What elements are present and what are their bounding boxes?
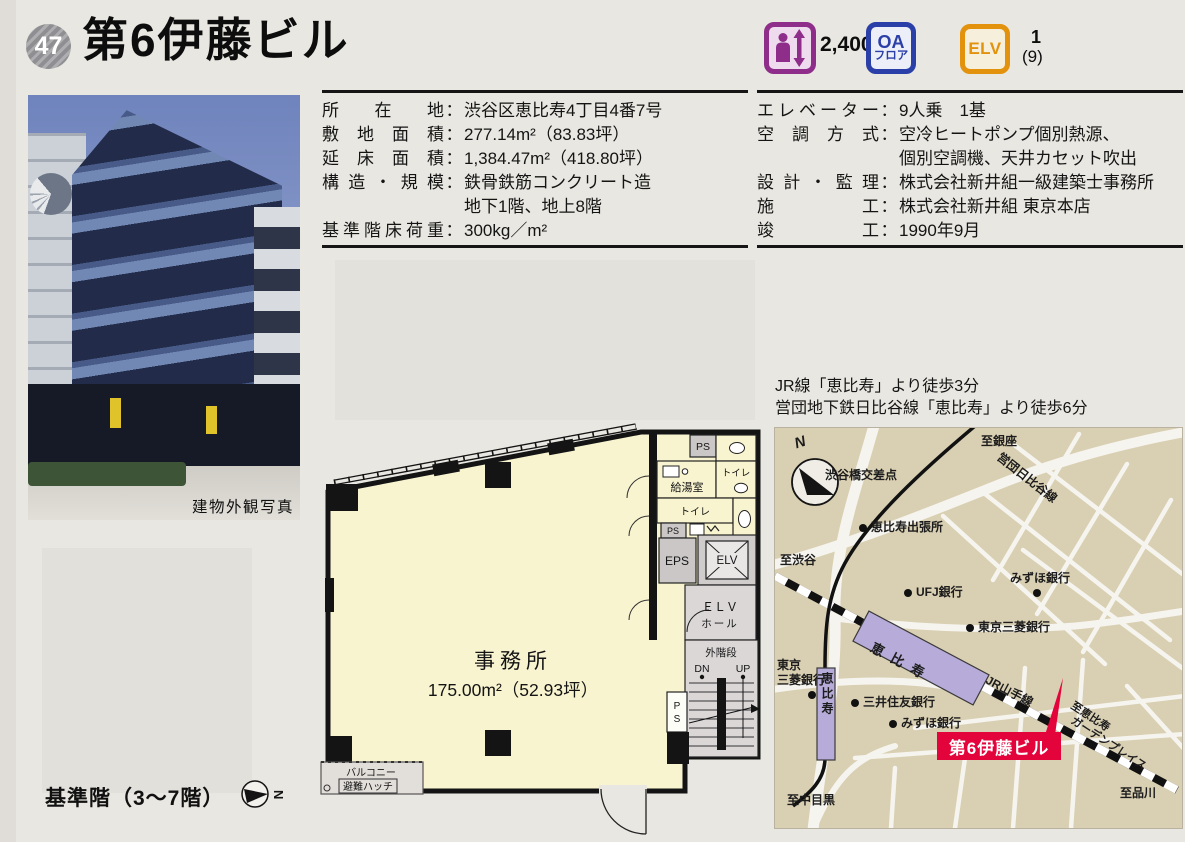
table-row: 空調方式 ： 空冷ヒートポンプ個別熱源、 — [757, 123, 1183, 147]
elevator-capacity-value: 2,400 — [820, 33, 873, 57]
oa-floor-badge: OA フロア — [866, 22, 916, 74]
specs-right-table: エレベーター ： 9人乗 1基 空調方式 ： 空冷ヒートポンプ個別熱源、 個別空… — [757, 90, 1183, 248]
spec-colon: ： — [879, 171, 899, 195]
specs-left-table: 所在地 ： 渋谷区恵比寿4丁目4番7号 敷地面積 ： 277.14m²（83.8… — [322, 90, 748, 248]
table-row: 所在地 ： 渋谷区恵比寿4丁目4番7号 — [322, 99, 748, 123]
building-photo: 建物外観写真 — [28, 95, 300, 520]
person-elevator-icon — [771, 29, 809, 67]
spec-label: 竣工 — [757, 219, 879, 243]
stairs-down-label: DN — [694, 663, 709, 675]
intersection-label: 渋谷橋交差点 — [825, 468, 897, 483]
hatch-label: 避難ハッチ — [343, 780, 393, 793]
elv-badge: ELV — [960, 24, 1010, 74]
compass-icon: N — [238, 778, 290, 810]
spec-value: 空冷ヒートポンプ個別熱源、 — [899, 123, 1120, 147]
spec-label: 所在地 — [322, 99, 444, 123]
photo-ground-floor — [28, 384, 300, 468]
building-location-label: 第6伊藤ビル — [937, 732, 1061, 760]
access-note: JR線「恵比寿」より徒歩3分 営団地下鉄日比谷線「恵比寿」より徒歩6分 — [775, 376, 1088, 421]
spec-value: 渋谷区恵比寿4丁目4番7号 — [464, 99, 662, 123]
stairs-label: 外階段 — [705, 646, 737, 659]
kitchen-label: 給湯室 — [671, 480, 704, 494]
poi-mitsubishi-bank-left-label: 三菱銀行 — [777, 673, 825, 688]
spec-colon: ： — [879, 123, 899, 147]
table-row: 個別空調機、天井カセット吹出 — [757, 147, 1183, 171]
direction-shinagawa-label: 至品川 — [1120, 786, 1156, 801]
table-row: 構造・規模 ： 鉄骨鉄筋コンクリート造 — [322, 171, 748, 195]
floorplan: 事務所 175.00m²（52.93坪） PS 給湯室 トイレ トイレ PS E… — [313, 420, 773, 835]
photo-sign — [110, 398, 121, 428]
scan-artifact — [0, 0, 16, 842]
direction-nakameguro-label: 至中目黒 — [787, 793, 835, 808]
direction-shibuya-label: 至渋谷 — [780, 553, 816, 568]
spec-colon: ： — [879, 219, 899, 243]
access-line: JR線「恵比寿」より徒歩3分 — [775, 376, 1088, 398]
spec-colon: ： — [444, 99, 464, 123]
table-row: 竣工 ： 1990年9月 — [757, 219, 1183, 243]
eps-label: EPS — [665, 554, 689, 568]
compass-n-label: N — [271, 790, 286, 799]
spec-label: 基準階床荷重 — [322, 219, 444, 243]
spec-value: 株式会社新井組 東京本店 — [899, 195, 1091, 219]
photo-caption: 建物外観写真 — [192, 495, 294, 517]
spec-colon: ： — [444, 219, 464, 243]
oa-floor-line1: OA — [878, 33, 905, 51]
entry-number-badge: 47 — [26, 24, 71, 69]
elevator-capacity-badge — [764, 22, 816, 74]
photo-greenery — [28, 462, 186, 486]
toilet-label: トイレ — [722, 468, 751, 479]
scan-artifact — [42, 548, 252, 793]
table-row: 施工 ： 株式会社新井組 東京本店 — [757, 195, 1183, 219]
office-area-label: 175.00m²（52.93坪） — [428, 680, 598, 700]
oa-floor-line2: フロア — [874, 51, 909, 63]
page-title: 第6伊藤ビル — [82, 4, 350, 70]
elv-badge-label: ELV — [968, 39, 1001, 59]
spec-value: 1990年9月 — [899, 219, 980, 243]
spec-value: 9人乗 1基 — [899, 99, 986, 123]
table-row: 地下1階、地上8階 — [322, 195, 748, 219]
spec-colon: ： — [444, 147, 464, 171]
spec-value: 株式会社新井組一級建築士事務所 — [899, 171, 1154, 195]
poi-mitsubishi-bank-label: 東京三菱銀行 — [978, 620, 1050, 635]
spec-colon: ： — [879, 195, 899, 219]
floorplan-drawing: 事務所 175.00m²（52.93坪） PS 給湯室 トイレ トイレ PS E… — [313, 420, 773, 835]
spec-label: 施工 — [757, 195, 879, 219]
spec-value: 地下1階、地上8階 — [464, 195, 602, 219]
table-row: 基準階床荷重 ： 300kg／m² — [322, 219, 748, 243]
spec-colon: ： — [444, 171, 464, 195]
elv-count: 1 — [1031, 27, 1041, 48]
poi-mizuho-bank-lower-label: みずほ銀行 — [901, 716, 961, 731]
ps-label: PS — [667, 526, 679, 536]
spec-value: 鉄骨鉄筋コンクリート造 — [464, 171, 651, 195]
table-row: 敷地面積 ： 277.14m²（83.83坪） — [322, 123, 748, 147]
location-map: N 至銀座 営団日比谷線 渋谷橋交差点 恵比寿出張所 至渋谷 UFJ銀行 みずほ… — [775, 428, 1182, 828]
spec-label: 敷地面積 — [322, 123, 444, 147]
access-line: 営団地下鉄日比谷線「恵比寿」より徒歩6分 — [775, 398, 1088, 420]
spec-colon: ： — [444, 123, 464, 147]
toilet-label: トイレ — [680, 507, 710, 518]
ps-label: P — [674, 701, 681, 712]
photo-sign — [206, 406, 217, 434]
poi-ufj-bank-label: UFJ銀行 — [916, 585, 963, 600]
table-row: 延床面積 ： 1,384.47m²（418.80坪） — [322, 147, 748, 171]
spec-value: 個別空調機、天井カセット吹出 — [899, 147, 1137, 171]
stairs-up-label: UP — [736, 663, 751, 675]
catalog-page: 47 第6伊藤ビル 2,400 OA フロア ELV 1 (9) 建物外観写真 — [0, 0, 1185, 842]
spec-value: 1,384.47m²（418.80坪） — [464, 147, 653, 171]
balcony-label: バルコニー — [346, 767, 396, 779]
table-row: エレベーター ： 9人乗 1基 — [757, 99, 1183, 123]
floor-note: 基準階（3～7階） — [45, 782, 224, 812]
elv-capacity: (9) — [1022, 47, 1043, 67]
spec-value: 300kg／m² — [464, 219, 547, 243]
ps-label: PS — [696, 441, 710, 453]
photo-fan-logo — [30, 173, 72, 215]
scan-artifact — [335, 260, 755, 420]
elevator-hall-label: ホール — [701, 618, 739, 630]
table-row: 設計・監理 ： 株式会社新井組一級建築士事務所 — [757, 171, 1183, 195]
spec-label: 延床面積 — [322, 147, 444, 171]
poi-mitsubishi-bank-left-label: 東京 — [777, 658, 801, 673]
spec-label: 設計・監理 — [757, 171, 879, 195]
office-label: 事務所 — [474, 650, 552, 673]
elevator-hall-label: ＥＬＶ — [702, 600, 738, 614]
ps-label: S — [674, 714, 681, 725]
spec-colon: ： — [879, 99, 899, 123]
spec-label: 構造・規模 — [322, 171, 444, 195]
hibiya-station-label: 恵比寿 — [819, 672, 834, 758]
spec-value: 277.14m²（83.83坪） — [464, 123, 629, 147]
poi-mizuho-bank-label: みずほ銀行 — [1010, 571, 1070, 586]
spec-label: エレベーター — [757, 99, 879, 123]
spec-label: 空調方式 — [757, 123, 879, 147]
poi-ebisu-branch-label: 恵比寿出張所 — [871, 520, 943, 535]
poi-smbc-bank-label: 三井住友銀行 — [863, 695, 935, 710]
elevator-label: ELV — [717, 555, 738, 567]
direction-ginza-label: 至銀座 — [981, 434, 1017, 449]
building-location-text: 第6伊藤ビル — [949, 734, 1049, 759]
